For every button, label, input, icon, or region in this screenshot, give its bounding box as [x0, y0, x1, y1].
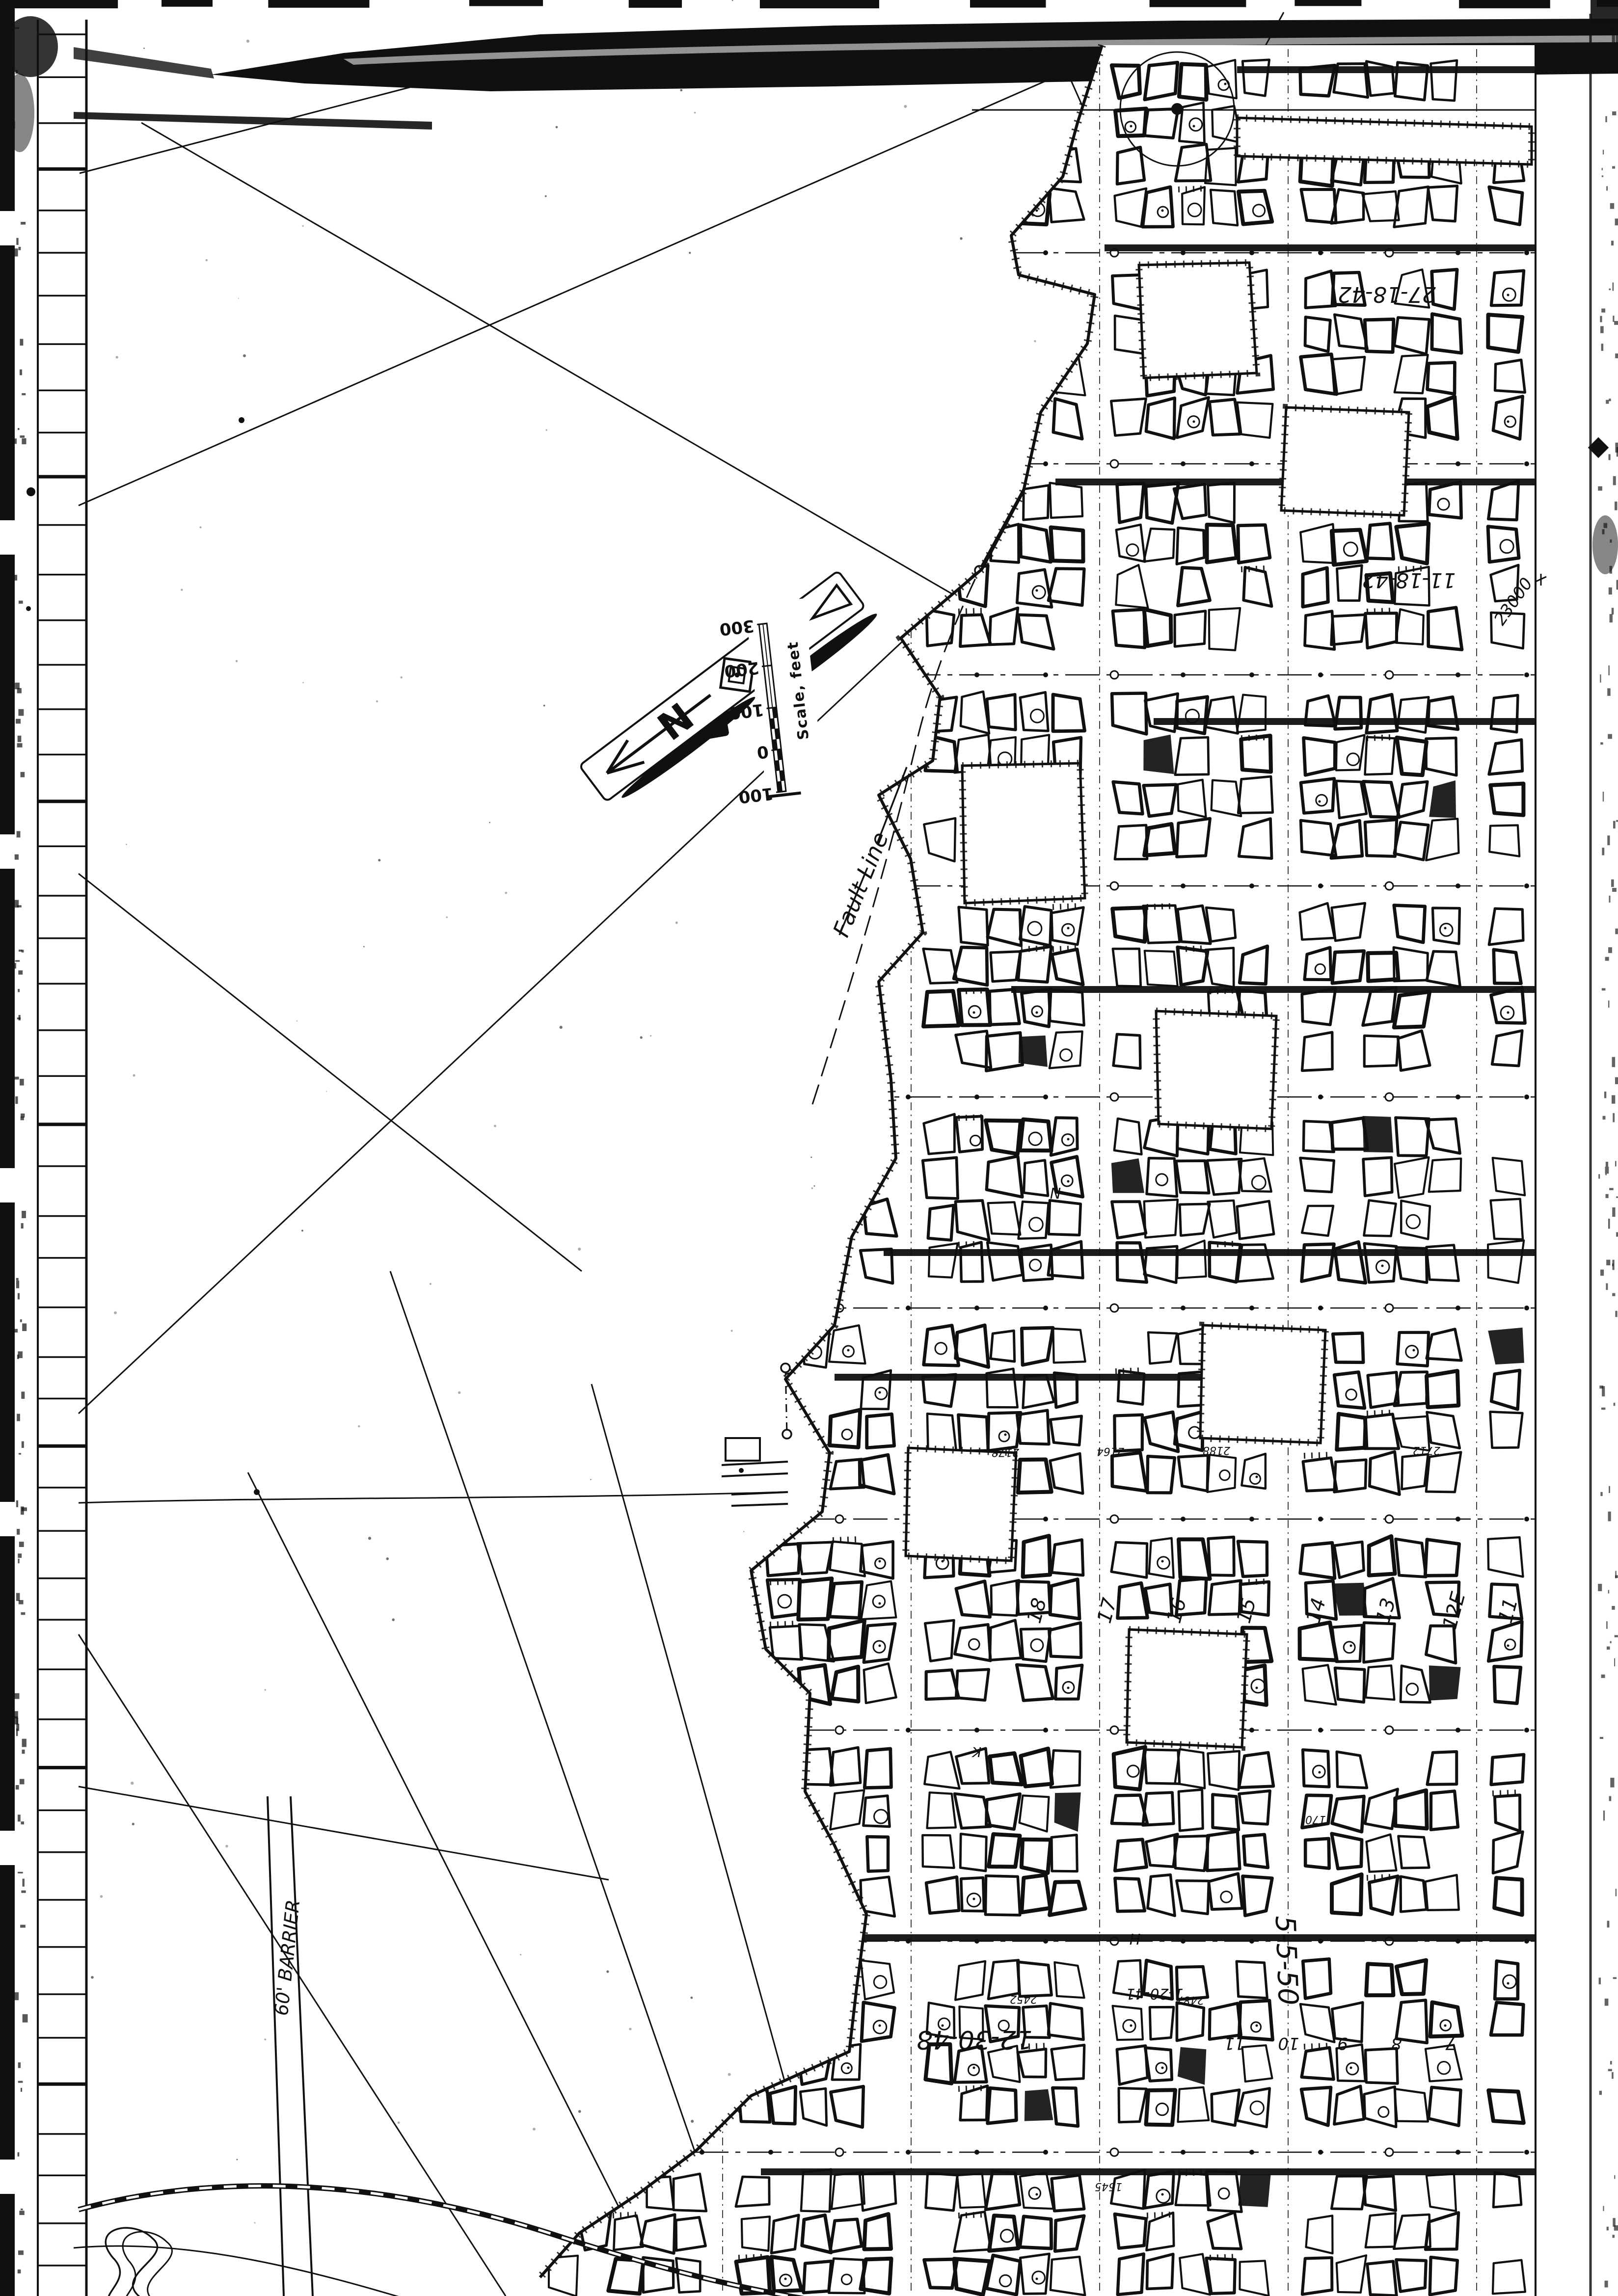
date-note-1942b: 11-18-42 [1362, 568, 1456, 592]
fault-line-label: Fault Line [828, 828, 893, 941]
scale-tick-label: 100 [737, 783, 774, 807]
map-canvas: 5 N 1000100200300 Scale, feet Fault Line… [0, 0, 1618, 2296]
elevation-note: 2452 [1010, 1993, 1037, 2005]
corridor-stubs [722, 1438, 788, 1506]
room-number: 10 [1278, 2033, 1299, 2053]
survey-marks [1536, 574, 1546, 586]
scale-tick-label: 300 [719, 615, 755, 639]
scale-tick-label: 0 [756, 742, 770, 762]
room-number: 7 [1445, 2033, 1456, 2053]
elevation-note: 2487 [1177, 1994, 1204, 2006]
scale-tick-label: 200 [723, 658, 760, 681]
elevation-note: 2178 [992, 1446, 1019, 1458]
elevation-note: 2164 [1097, 1445, 1124, 1457]
elevation-note: 2188 [1203, 1444, 1230, 1456]
date-note-1941: 1-20-41 [1126, 1985, 1183, 2002]
room-number: 9 [1337, 2033, 1348, 2053]
elevation-note: 170 [1305, 1813, 1326, 1825]
left-margin-ruler [26, 20, 260, 2296]
pillar-letter-h: H [1130, 1931, 1141, 1949]
date-note-1942a: 27-18-42 [1338, 282, 1436, 307]
date-note-1950: 5-5-50 [1269, 1915, 1304, 2006]
scanned-mine-map-page: 5 N 1000100200300 Scale, feet Fault Line… [0, 0, 1618, 2296]
pillar-letter-k: K [971, 1744, 981, 1760]
scale-tick-label: 100 [728, 699, 765, 723]
mine-workings-area [535, 42, 1537, 2296]
room-number: 8 [1391, 2033, 1402, 2053]
elevation-note: 2712 [1413, 1444, 1440, 1456]
north-arrow: N [579, 568, 881, 818]
elevation-note: 1545 [1095, 2180, 1122, 2192]
pillar-letter-n: N [1050, 1184, 1061, 1201]
date-note-1948: 12-30-48 [917, 2025, 1032, 2054]
room-number: 11 [1224, 2033, 1245, 2053]
